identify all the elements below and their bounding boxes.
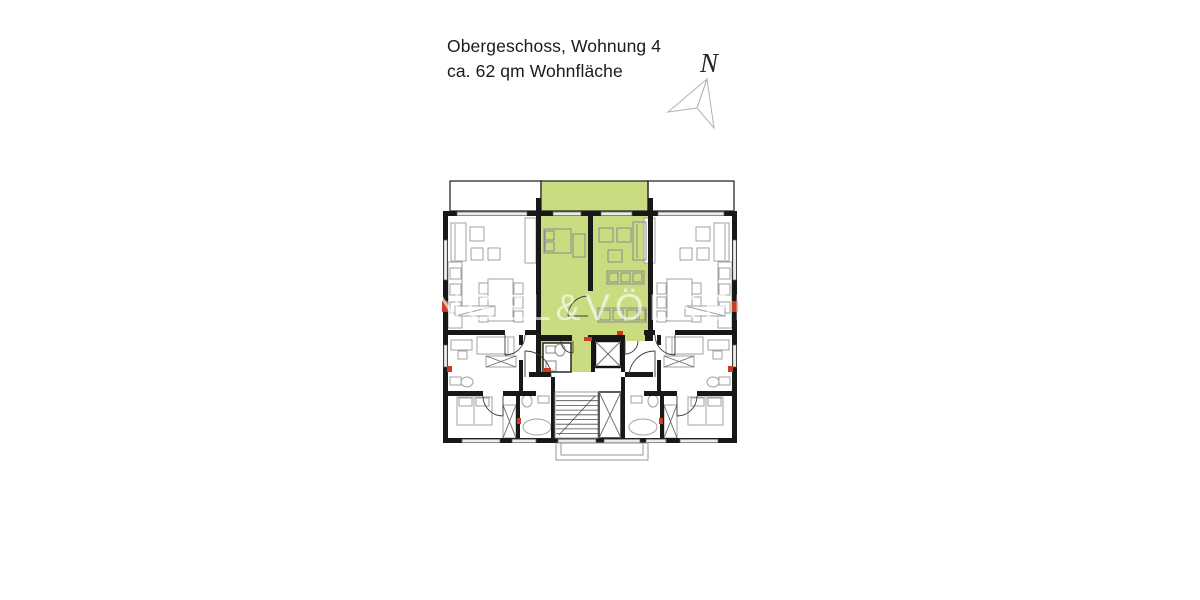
wall-segment (648, 211, 653, 335)
sink (631, 396, 642, 403)
wall-segment (588, 211, 593, 291)
red-marker (517, 418, 521, 424)
plan-title-line1: Obergeschoss, Wohnung 4 (447, 34, 661, 59)
balcony-wall (536, 198, 541, 211)
red-marker (617, 331, 623, 335)
stool (488, 248, 500, 260)
cabinet (525, 218, 536, 263)
sofa-left (451, 223, 466, 261)
balcony-wall (648, 198, 653, 211)
window (457, 212, 527, 216)
armchair (470, 227, 484, 241)
bathtub (523, 419, 551, 435)
appliance (719, 284, 730, 295)
chair (692, 283, 701, 294)
wall-segment (645, 335, 653, 341)
chair (514, 297, 523, 308)
wall-segment (632, 211, 658, 216)
plan-title: Obergeschoss, Wohnung 4 ca. 62 qm Wohnfl… (447, 34, 661, 84)
wall-segment (519, 335, 523, 345)
floor-plan (0, 0, 1200, 600)
bathroom-apartment4 (543, 343, 571, 372)
window (444, 345, 448, 367)
appliance (450, 284, 461, 295)
wall-segment (657, 335, 661, 345)
red-marker (659, 418, 663, 424)
pillow (708, 398, 721, 406)
north-label: N (700, 48, 718, 79)
wall-segment (675, 330, 737, 335)
wall-segment (443, 391, 483, 396)
wall-segment (536, 335, 572, 341)
bath-door-arc (625, 341, 638, 354)
toilet (648, 395, 658, 407)
wall-segment (644, 391, 677, 396)
window (553, 212, 581, 216)
window (680, 439, 718, 443)
stool (697, 248, 709, 260)
chair (514, 283, 523, 294)
balcony-left (450, 181, 541, 211)
window (646, 439, 666, 443)
toilet (522, 395, 532, 407)
window (604, 439, 640, 443)
window (558, 439, 596, 443)
wall-segment (551, 377, 555, 443)
sink (538, 396, 549, 403)
pillow (691, 398, 704, 406)
window (733, 345, 737, 367)
red-marker (543, 368, 551, 372)
toilet (461, 377, 473, 387)
desk (708, 340, 729, 350)
wall-segment (660, 396, 664, 438)
armchair (696, 227, 710, 241)
pillow (476, 398, 489, 406)
wall-segment (644, 330, 655, 335)
window (512, 439, 536, 443)
red-marker (447, 366, 452, 372)
window (444, 240, 448, 280)
sofa-right (714, 223, 729, 261)
entrance-platform-inner (561, 443, 643, 455)
wall-segment (657, 360, 661, 392)
red-marker (728, 366, 733, 372)
red-marker (732, 301, 738, 312)
page: Obergeschoss, Wohnung 4 ca. 62 qm Wohnfl… (0, 0, 1200, 600)
wall-segment (443, 330, 505, 335)
chair (657, 283, 666, 294)
red-marker (442, 301, 448, 312)
wall-segment (529, 372, 551, 377)
balcony-right (648, 181, 734, 211)
wall-segment (536, 211, 541, 335)
appliance (450, 268, 461, 279)
window (658, 212, 724, 216)
toilet (707, 377, 719, 387)
chair (479, 283, 488, 294)
window (733, 240, 737, 280)
desk-chair (713, 351, 722, 359)
wall-segment (525, 330, 536, 335)
plan-title-line2: ca. 62 qm Wohnfläche (447, 59, 661, 84)
balcony-apartment4 (541, 181, 648, 211)
chair (657, 311, 666, 322)
window (462, 439, 500, 443)
wall-segment (519, 360, 523, 392)
chair (657, 297, 666, 308)
sink (719, 377, 730, 385)
pillow (459, 398, 472, 406)
wall-segment (697, 391, 737, 396)
window (601, 212, 632, 216)
red-marker (584, 337, 592, 341)
chair (514, 311, 523, 322)
entrance-platform-outer (556, 443, 648, 460)
desk-chair (458, 351, 467, 359)
wall-segment (516, 396, 520, 438)
wall-segment (503, 391, 536, 396)
north-arrow-right-facet (697, 79, 714, 128)
stool (680, 248, 692, 260)
bathtub (629, 419, 657, 435)
desk (451, 340, 472, 350)
stool (471, 248, 483, 260)
sink (450, 377, 461, 385)
appliance (719, 268, 730, 279)
